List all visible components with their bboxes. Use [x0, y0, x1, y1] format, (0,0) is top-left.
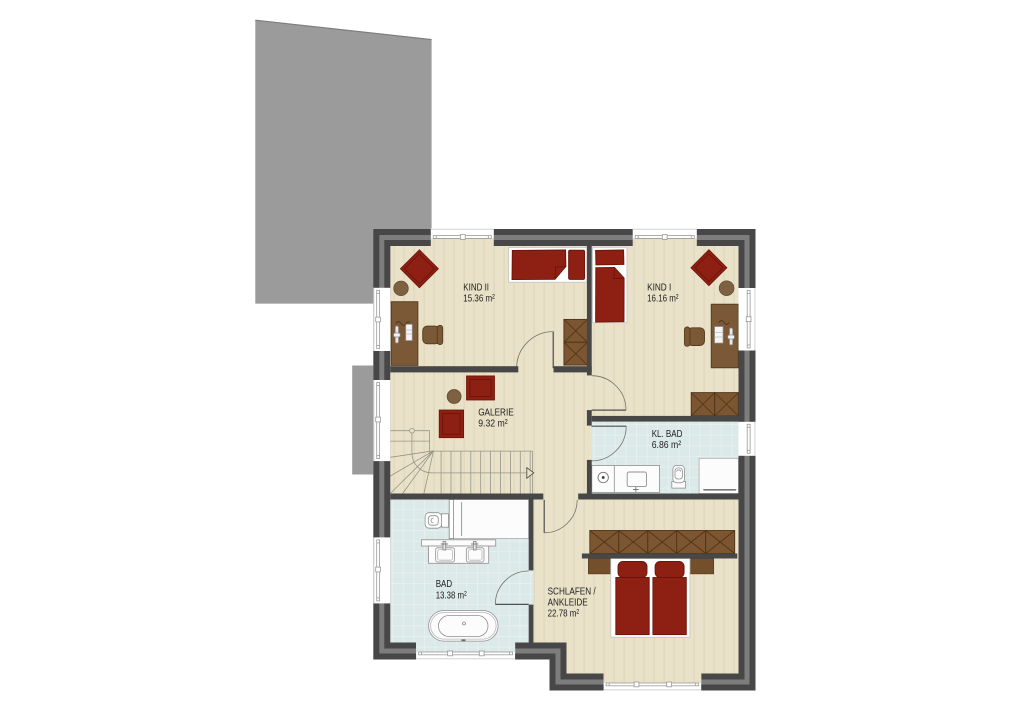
svg-text:GALERIE: GALERIE	[478, 407, 514, 418]
svg-text:16.16 m²: 16.16 m²	[647, 294, 679, 305]
svg-text:ANKLEIDE: ANKLEIDE	[548, 598, 588, 609]
svg-text:9.32 m²: 9.32 m²	[478, 419, 508, 430]
svg-text:KIND II: KIND II	[463, 282, 489, 293]
svg-text:22.78 m²: 22.78 m²	[548, 609, 580, 620]
svg-text:KL. BAD: KL. BAD	[652, 429, 683, 440]
svg-text:KIND I: KIND I	[647, 282, 671, 293]
svg-text:13.38 m²: 13.38 m²	[436, 590, 467, 601]
svg-text:6.86 m²: 6.86 m²	[652, 440, 682, 451]
svg-text:SCHLAFEN /: SCHLAFEN /	[548, 586, 596, 597]
svg-text:BAD: BAD	[436, 579, 453, 590]
svg-text:15.36 m²: 15.36 m²	[463, 294, 495, 305]
